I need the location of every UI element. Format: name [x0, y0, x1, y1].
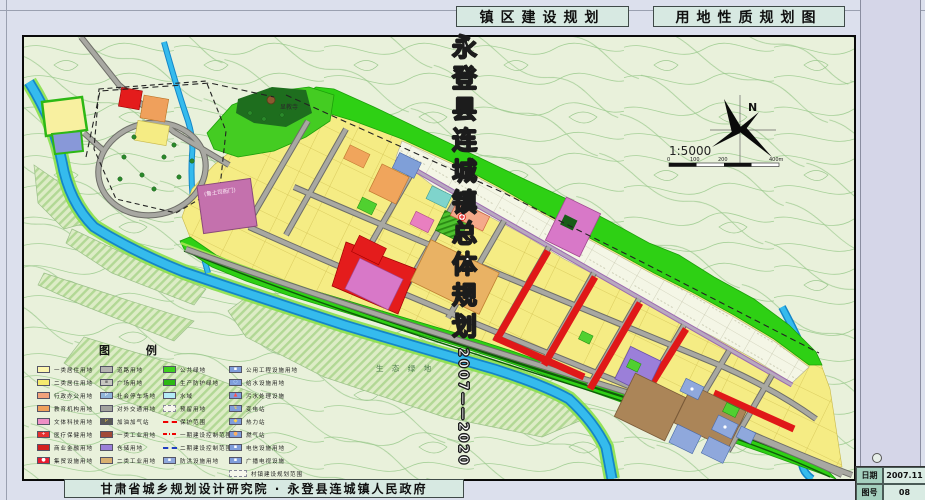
legend-label: 公用工程设施用地: [246, 366, 298, 374]
yamen-block: (鲁土司衙门): [197, 178, 257, 233]
legend-swatch: ●: [37, 457, 50, 464]
legend-swatch: ▪: [229, 366, 242, 373]
sidebar-years: 2007——2020: [455, 348, 470, 466]
sidebar: [860, 0, 921, 466]
legend-swatch: [163, 366, 176, 373]
legend-swatch: [37, 444, 50, 451]
legend-swatch: [100, 457, 113, 464]
legend-swatch: ↯: [229, 405, 242, 412]
legend-swatch: [100, 366, 113, 373]
legend-swatch: [37, 405, 50, 412]
legend-swatch: [37, 379, 50, 386]
eco-area-label: 生 态 绿 地: [376, 363, 434, 373]
legend-swatch: ▪: [229, 457, 242, 464]
legend-label: 一类居住用地: [54, 366, 93, 374]
legend-label: 一期建设控制范围: [180, 431, 232, 439]
legend-swatch: [37, 392, 50, 399]
legend-label: 燃气站: [246, 431, 266, 439]
legend-label: 污水处理设施: [246, 392, 285, 400]
legend-swatch: P: [100, 418, 113, 425]
sheet-number-value: 08: [883, 484, 925, 500]
legend-label: 公共绿地: [180, 366, 206, 374]
north-label: N: [748, 101, 757, 114]
left-rule: [6, 0, 7, 500]
legend-swatch: [100, 444, 113, 451]
legend-swatch: +: [37, 431, 50, 438]
legend-label: 广播电视设施: [246, 457, 285, 465]
scale-text: 1:5000: [669, 144, 711, 158]
legend-label: 给水设施用地: [246, 379, 285, 387]
header-left-title-text: 镇区建设规划: [480, 7, 606, 27]
legend-swatch: [163, 447, 177, 449]
legend-swatch: [163, 379, 176, 386]
legend-swatch: [100, 431, 113, 438]
legend-swatch: ▪: [100, 379, 113, 386]
legend-swatch: P: [100, 392, 113, 399]
legend-label: 生产防护绿地: [180, 379, 219, 387]
legend-label: 电信设施用地: [246, 444, 285, 452]
legend-title: 图 例: [99, 342, 173, 358]
legend-label: 文体科技用地: [54, 418, 93, 426]
legend-label: 广场用地: [117, 379, 143, 387]
header-right-title: 用地性质规划图: [653, 6, 845, 27]
legend-label: 预留用地: [180, 405, 206, 413]
sidebar-title: 永登县连城镇总体规划: [445, 34, 481, 344]
legend-swatch: [229, 470, 247, 477]
legend-label: 集贸设施用地: [54, 457, 93, 465]
scale-tick-2: 200: [718, 157, 728, 163]
legend-label: 一类工业用地: [117, 431, 156, 439]
scale-tick-3: 400m: [769, 157, 784, 163]
legend-swatch: [163, 392, 176, 399]
legend-label: 二类工业用地: [117, 457, 156, 465]
legend-swatch: ●: [229, 431, 242, 438]
legend-swatch: [37, 366, 50, 373]
drawing-sheet: 镇区建设规划 用地性质规划图: [0, 0, 925, 500]
registration-mark: [872, 453, 882, 463]
legend-swatch: [163, 405, 176, 412]
scale-tick-0: 0: [667, 157, 670, 163]
legend-swatch: [37, 418, 50, 425]
legend-label: 村镇建设规划范围: [251, 470, 303, 478]
legend-swatch: ▪: [163, 457, 176, 464]
legend-swatch: ◆: [229, 418, 242, 425]
legend-swatch: [163, 433, 177, 435]
legend-swatch: ▲: [229, 392, 242, 399]
footer-credit-text: 甘肃省城乡规划设计研究院 · 永登县连城镇人民政府: [101, 480, 428, 497]
legend-label: 加油加气站: [117, 418, 150, 426]
legend-label: 行政办公用地: [54, 392, 93, 400]
temple-label: 显教寺: [280, 103, 298, 111]
legend-swatch: ○: [229, 379, 242, 386]
legend-label: 社会停车场地: [117, 392, 156, 400]
header-right-title-text: 用地性质规划图: [676, 7, 823, 27]
scale-tick-1: 100: [690, 157, 700, 163]
legend: 图 例 一类居住用地二类居住用地行政办公用地教育机构用地文体科技用地+医疗保健用…: [33, 342, 305, 476]
legend-label: 医疗保健用地: [54, 431, 93, 439]
legend-label: 商业金融用地: [54, 444, 93, 452]
legend-label: 变电站: [246, 405, 266, 413]
legend-swatch: ▪: [229, 444, 242, 451]
legend-label: 仓储用地: [117, 444, 143, 452]
legend-label: 道路用地: [117, 366, 143, 374]
date-label: 日期: [856, 467, 883, 484]
legend-label: 教育机构用地: [54, 405, 93, 413]
header-left-title: 镇区建设规划: [456, 6, 629, 27]
legend-swatch: [100, 405, 113, 412]
legend-label: 保护范围: [180, 418, 206, 426]
legend-label: 二类居住用地: [54, 379, 93, 387]
legend-swatch: [163, 421, 177, 423]
legend-label: 防洪设施用地: [180, 457, 219, 465]
legend-label: 对外交通用地: [117, 405, 156, 413]
legend-label: 热力站: [246, 418, 266, 426]
title-block-table: 日期 2007.11 图号 08: [855, 466, 925, 500]
legend-label: 二期建设控制范围: [180, 444, 232, 452]
date-value: 2007.11: [883, 467, 925, 484]
legend-label: 水域: [180, 392, 193, 400]
sheet-number-label: 图号: [856, 484, 883, 500]
footer-credit-box: 甘肃省城乡规划设计研究院 · 永登县连城镇人民政府: [64, 479, 464, 498]
